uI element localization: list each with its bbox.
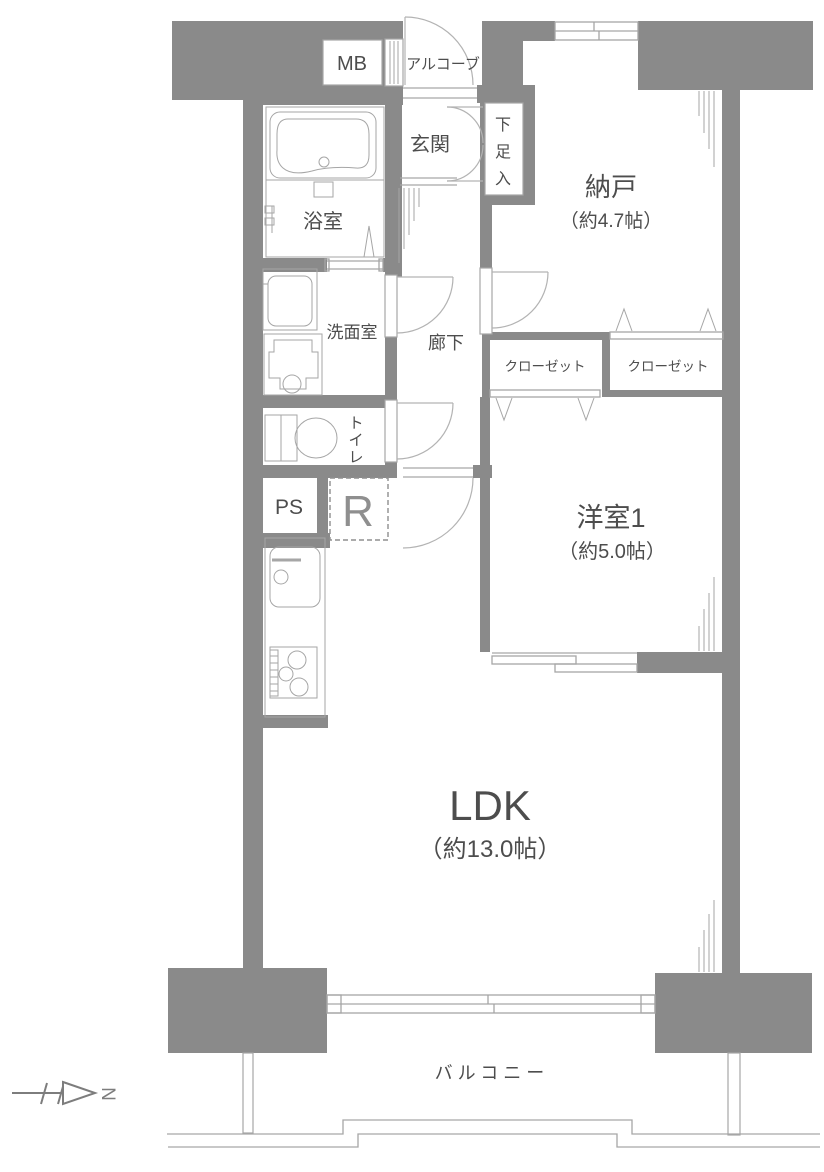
balcony-window	[327, 995, 655, 1013]
laundry-pan-inner	[269, 340, 318, 389]
closet-right-opening	[610, 309, 723, 339]
balcony-post-left	[243, 1053, 253, 1133]
entrance-label: 玄関	[410, 133, 450, 156]
laundry-drain	[283, 375, 301, 393]
western-room-sliding-door	[492, 653, 637, 672]
storage-room-area: （約4.7帖）	[560, 210, 662, 232]
wall-shoebox-bottom	[482, 195, 535, 205]
wall-closet-left	[482, 340, 490, 397]
wall-closet-divider	[602, 332, 610, 397]
ldk-label: LDK	[449, 782, 531, 829]
wall-western-bottom	[637, 652, 740, 673]
wall-closet-top-left	[482, 332, 610, 340]
bath-counter	[314, 182, 333, 197]
storage-room-label: 納戸	[585, 172, 637, 202]
north-arrow	[12, 1082, 95, 1104]
burner	[290, 678, 308, 696]
storage-door	[480, 268, 548, 334]
bath-door-fold-mark	[364, 226, 374, 257]
north-label: N	[97, 1087, 118, 1101]
bathroom-label: 浴室	[303, 210, 343, 233]
wall-ps-bottom	[243, 533, 330, 548]
entrance-door-jamb	[385, 39, 403, 86]
entrance-door	[405, 17, 473, 85]
ldk-area: （約13.0帖）	[419, 836, 562, 863]
floor-plan-canvas: MB アルコーブ 玄関 下足入 納戸 （約4.7帖） 浴室 洗面室 廊下 トイレ…	[0, 0, 824, 1172]
corridor-label: 廊下	[428, 333, 464, 353]
meter-box-label: MB	[337, 53, 367, 75]
shoe-cabinet-doors	[447, 107, 483, 181]
burner	[279, 667, 293, 681]
bathtub-drain	[319, 157, 329, 167]
entrance-threshold	[403, 88, 477, 98]
closet-left-label: クローゼット	[505, 359, 586, 374]
kitchen-faucet	[274, 570, 288, 584]
burner	[288, 651, 306, 669]
western-room-area: （約5.0帖）	[558, 540, 666, 563]
wall-western-left	[480, 397, 490, 652]
wall-bottom-left-block	[168, 968, 327, 1053]
wall-top-left-ext	[172, 85, 263, 100]
wall-top-right-block	[638, 21, 813, 90]
wall-washroom-toilet	[243, 395, 397, 408]
wall-bottom-right-block	[655, 973, 812, 1053]
washroom-label: 洗面室	[327, 323, 378, 342]
wall-toilet-ps	[243, 465, 397, 478]
refrigerator-label: R	[342, 487, 374, 536]
ldk-door	[397, 465, 473, 548]
wall-entry-right	[477, 85, 535, 103]
bathroom-fixtures	[265, 107, 384, 257]
stove	[270, 647, 317, 698]
vanity-basin	[268, 276, 312, 326]
washroom-fixtures	[263, 269, 322, 395]
floor-plan: MB アルコーブ 玄関 下足入 納戸 （約4.7帖） 浴室 洗面室 廊下 トイレ…	[0, 0, 824, 1172]
western-room-label: 洋室1	[576, 503, 645, 533]
toilet-label: トイレ	[348, 415, 363, 466]
wall-bath-top	[263, 85, 403, 105]
balcony-rail-outer	[167, 1120, 820, 1134]
laundry-pan	[264, 334, 322, 395]
toilet-door	[385, 400, 453, 462]
room-labels: MB アルコーブ 玄関 下足入 納戸 （約4.7帖） 浴室 洗面室 廊下 トイレ…	[97, 53, 709, 1101]
bathtub-inner	[277, 119, 369, 173]
balcony-label: バルコニー	[435, 1063, 550, 1083]
wall-closet-bottom-right	[610, 390, 723, 397]
washroom-door	[385, 275, 453, 337]
kitchen-counter	[265, 538, 325, 717]
stove-grill	[270, 650, 278, 696]
toilet-fixtures	[265, 415, 337, 461]
toilet-bowl	[295, 418, 337, 458]
balcony-rail-inner	[168, 1134, 820, 1147]
closet-left-opening	[490, 390, 600, 420]
kitchen-fixtures	[265, 538, 325, 717]
alcove-label: アルコーブ	[406, 55, 480, 73]
wall-shoebox-right	[523, 100, 535, 205]
closet-right-label: クローゼット	[628, 359, 709, 374]
wall-right-outer	[722, 90, 740, 973]
wall-ps-divider	[317, 478, 328, 540]
pipe-shaft-label: PS	[275, 496, 303, 519]
storage-window	[555, 22, 638, 40]
balcony-post-right	[728, 1053, 740, 1135]
shoe-cabinet-label: 下足入	[495, 117, 511, 188]
kitchen-sink	[270, 547, 320, 607]
bathroom-door	[325, 259, 383, 271]
wall-corridor-left-mid	[385, 335, 397, 402]
